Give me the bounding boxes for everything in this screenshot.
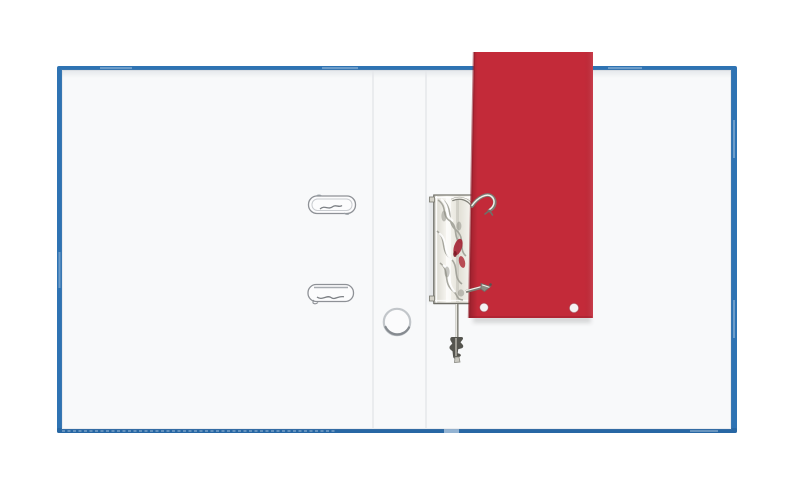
binder-photo bbox=[0, 0, 800, 502]
bottom-ring-rivet bbox=[489, 283, 492, 286]
mechanism-plate bbox=[430, 195, 473, 305]
lever-tip bbox=[455, 357, 461, 363]
plate-tab-top bbox=[430, 197, 435, 202]
paper-clamp-bottom bbox=[308, 285, 354, 304]
red-divider-card bbox=[469, 52, 593, 318]
metal-eyelet-ring bbox=[384, 309, 410, 335]
divider-hole-left bbox=[480, 303, 489, 312]
photo-stage bbox=[0, 0, 800, 502]
divider-hole-right bbox=[569, 303, 578, 312]
binder-inner-page bbox=[62, 70, 731, 429]
binder bbox=[57, 66, 737, 433]
plate-tab-bottom bbox=[430, 296, 435, 301]
inner-top-shadow bbox=[62, 70, 731, 78]
paper-clamp-top bbox=[309, 195, 356, 214]
